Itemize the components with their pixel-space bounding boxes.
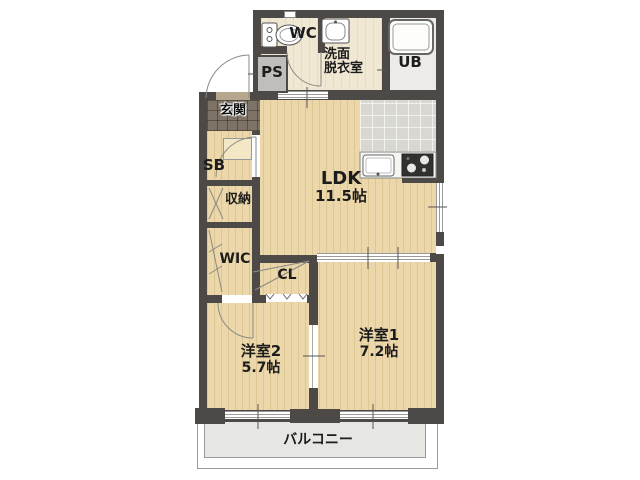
label-genkan: 玄関 [209,104,257,118]
wall-gap-right [436,246,444,254]
floor-plan: WC PS 洗面 脱衣室 UB 玄関 SB 収納 WIC CL LDK 11.5… [0,0,640,480]
label-ub: UB [396,55,424,71]
cl-folding-track [266,294,307,302]
label-ldk-size: 11.5帖 [301,189,381,205]
label-youshitsu2-size: 5.7帖 [221,361,301,376]
y2-balcony-window [225,411,290,419]
label-senmen-line2: 脱衣室 [324,62,380,76]
wall-divider-top [309,303,318,325]
sb-door-opening [252,135,260,177]
wall-sb-shuunou [207,180,252,186]
wall-corner-right [408,408,444,424]
shoe-box-counter [223,138,252,160]
wall-left [199,92,207,422]
y1-balcony-window [340,411,410,419]
label-wc: WC [285,26,321,42]
wall-shuunou-wic [207,222,252,228]
wall-y2-top-c [307,295,318,303]
wall-top [253,10,444,18]
label-wic: WIC [210,252,260,267]
label-sb: SB [199,158,229,174]
wall-cl-top [252,255,310,263]
wall-corner-left [195,408,225,424]
ldk-y1-sliding-partition [317,253,430,262]
wall-corner-middle [290,409,340,423]
label-balcony: バルコニー [258,433,378,448]
entrance-step [216,92,250,100]
wall-y2-top-a [199,295,222,303]
wall-wc-bottom [261,46,287,54]
label-youshitsu2: 洋室2 [221,344,301,360]
y2-door-opening [222,295,252,303]
label-ps: PS [258,65,286,81]
wall-partition-nub [430,253,436,262]
label-youshitsu1: 洋室1 [339,328,419,344]
label-senmen-line1: 洗面 [324,48,380,62]
wall-washroom-ub [382,18,390,90]
ldk-window [436,183,444,232]
label-youshitsu1-size: 7.2帖 [339,345,419,360]
y1-y2-partition-panel [309,325,318,388]
label-shuunou: 収納 [214,193,262,207]
kitchen-tile-floor [360,97,436,152]
wc-window [284,11,296,18]
label-cl: CL [267,268,307,283]
